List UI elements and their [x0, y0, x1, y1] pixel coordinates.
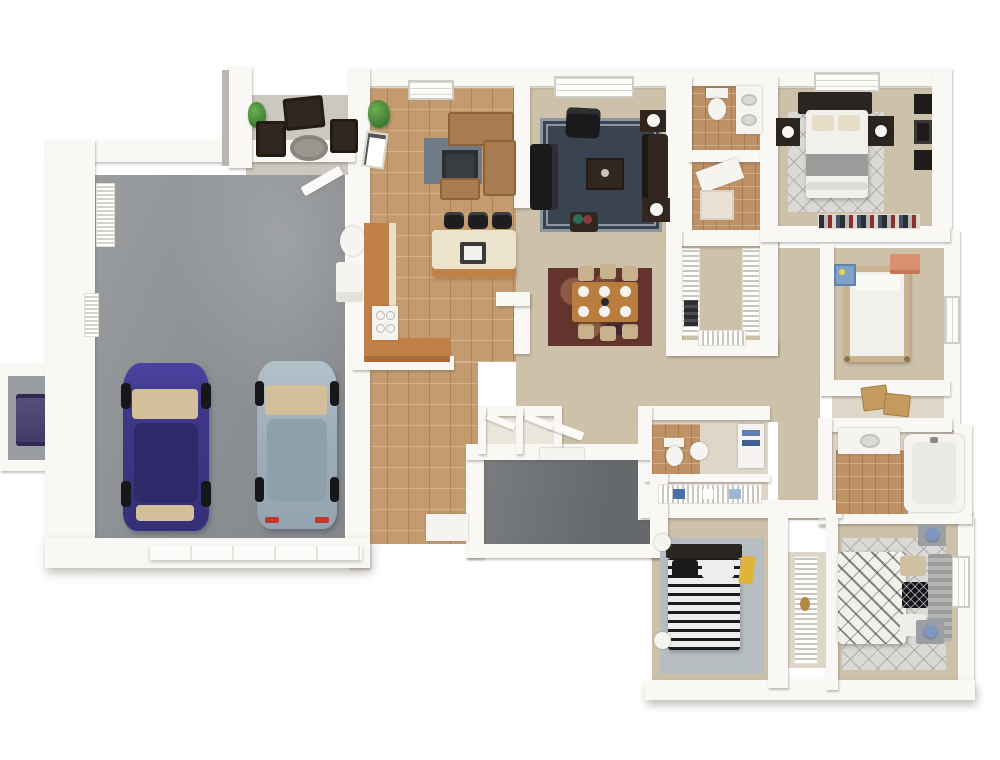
toy-shelf	[834, 264, 856, 286]
wardrobe-shelving	[794, 556, 818, 664]
bathtub-faucet	[930, 437, 938, 443]
bathtub	[904, 434, 964, 512]
round-side-table	[654, 534, 671, 551]
island-sink	[460, 242, 486, 264]
closet-shelf-bottom	[698, 330, 746, 346]
wall-niche-v2	[516, 406, 523, 454]
wall-wardrobe-right	[826, 518, 838, 690]
patio-chair-right	[330, 119, 358, 153]
centerpiece	[601, 298, 609, 306]
dining-chair	[578, 266, 594, 281]
water-heater	[340, 226, 365, 256]
round-side-table	[654, 632, 671, 649]
purple-sedan-windshield	[132, 389, 198, 419]
bedroom-3-headboard	[666, 544, 742, 558]
closet-shelf-right	[742, 248, 760, 336]
gray-blanket	[806, 154, 868, 176]
purple-sedan-wheel	[201, 481, 211, 507]
flowers	[573, 214, 583, 224]
patio-privacy-wall-side	[222, 70, 229, 166]
blue-lamp	[924, 625, 937, 638]
kitchen-counter-bottom	[364, 338, 450, 362]
silver-sedan-wheel	[255, 477, 264, 502]
nightstand-gray	[916, 620, 944, 644]
black-diamond-pillow	[902, 582, 928, 608]
place-setting	[578, 286, 589, 297]
pillow	[672, 560, 698, 578]
wall-family-living	[514, 86, 530, 208]
master-toilet-bowl	[708, 98, 726, 120]
master-toilet-tank	[706, 88, 728, 98]
silver-sedan-taillight	[265, 517, 279, 523]
wall-art-frame	[914, 120, 932, 144]
salmon-dresser	[890, 254, 920, 274]
silver-sedan-wheel	[255, 381, 264, 406]
sectional-sofa-side	[483, 140, 516, 196]
living-room-window	[554, 76, 634, 98]
end-table-bottom	[642, 198, 670, 222]
shower-base	[700, 190, 734, 220]
kitchen-island	[432, 230, 516, 278]
loveseat	[642, 134, 668, 200]
place-setting	[578, 306, 589, 317]
wall-bottom-right	[645, 680, 975, 700]
dining-chair	[578, 324, 594, 339]
vanity-sink	[860, 434, 880, 448]
blue-lamp	[926, 528, 939, 541]
front-door	[540, 448, 584, 460]
wall-bedroom2-left	[820, 244, 834, 394]
wall-art-frame	[914, 94, 932, 114]
silver-sedan-taillight	[315, 517, 329, 523]
dining-chair	[622, 324, 638, 339]
garage-door	[150, 546, 362, 560]
dining-chair	[600, 264, 616, 279]
nightstand-gray	[918, 524, 946, 546]
place-setting	[599, 286, 610, 297]
table-lamp	[647, 114, 660, 127]
master-closet-clothes	[818, 214, 920, 229]
master-bedroom-window	[814, 72, 880, 92]
armchair	[565, 107, 601, 139]
sectional-chaise	[440, 178, 480, 200]
garage-vent-upper	[96, 183, 115, 247]
wall-garage-left	[45, 140, 95, 565]
wall-bedroom3-right	[768, 518, 788, 688]
silver-sedan	[257, 361, 337, 529]
coffee-table	[586, 158, 624, 190]
range	[372, 306, 398, 340]
purple-sedan	[123, 363, 209, 531]
blanket-fold	[806, 182, 868, 190]
washer	[336, 262, 363, 302]
wall-right-1	[932, 68, 952, 236]
bedside-lamp	[782, 126, 794, 138]
floor-plan-3d	[0, 0, 1000, 760]
dining-table	[572, 282, 638, 322]
bed-post	[844, 356, 850, 362]
linens	[729, 489, 741, 499]
purple-sedan-wheel	[121, 481, 131, 507]
bedroom-2-window	[944, 296, 960, 344]
place-setting	[620, 286, 631, 297]
linen-shelf	[658, 484, 762, 504]
wall-porch-bottom	[466, 544, 668, 558]
burner	[376, 311, 385, 320]
bar-stool	[468, 212, 488, 229]
bathtub-basin	[912, 442, 956, 504]
wall-art-frame	[914, 150, 932, 170]
purple-sedan-roof	[134, 423, 198, 503]
flowers	[583, 215, 592, 224]
place-setting	[620, 306, 631, 317]
console-table	[426, 514, 468, 541]
bedroom-4-door	[950, 556, 970, 608]
pillow	[838, 115, 860, 131]
pillow	[812, 115, 834, 131]
wall-niche-v1	[478, 406, 486, 454]
master-vanity	[736, 86, 762, 134]
pillow	[854, 275, 900, 291]
bedside-lamp	[875, 125, 887, 137]
wall-kitchen-stub-h	[496, 292, 530, 306]
wall-hallbath-top	[638, 406, 770, 420]
pedestal-sink	[690, 442, 708, 460]
patio-bench	[282, 95, 325, 131]
dining-chair	[600, 326, 616, 341]
hall-toilet-bowl	[666, 446, 683, 466]
wall-closet-right	[760, 230, 778, 354]
bar-stool	[444, 212, 464, 229]
end-table-top	[640, 110, 666, 132]
blue-towel	[742, 440, 760, 446]
purple-sedan-wheel	[121, 383, 131, 409]
silver-sedan-wheel	[330, 381, 339, 406]
patio-round-rug	[290, 135, 328, 161]
nightstand	[868, 116, 894, 146]
pillow	[900, 556, 926, 576]
bed-post	[904, 356, 910, 362]
duvet	[838, 552, 906, 644]
vanity-sink	[741, 114, 757, 126]
hanging-clothes-dark	[684, 300, 698, 326]
linens	[703, 489, 713, 499]
dining-chair	[622, 266, 638, 281]
table-lamp	[650, 203, 663, 216]
hall-right-floor	[778, 248, 820, 520]
silver-sedan-windshield	[265, 385, 327, 415]
bathroom-2-tile	[836, 450, 908, 514]
burner	[376, 324, 385, 333]
patio-chair-left	[256, 121, 286, 157]
family-room-window	[408, 80, 454, 100]
master-bed	[806, 110, 868, 198]
entry-porch-floor	[482, 460, 652, 546]
table-decor	[601, 169, 609, 177]
toy	[839, 269, 845, 275]
stored-items	[800, 597, 810, 611]
purple-sedan-wheel	[201, 383, 211, 409]
silver-sedan-roof	[267, 419, 327, 501]
silver-sedan-wheel	[330, 477, 339, 502]
pillow	[702, 560, 734, 578]
purple-sedan-rear-window	[136, 505, 194, 521]
vanity-sink	[741, 94, 757, 106]
nightstand	[776, 118, 800, 146]
bedroom-3-striped-bed	[668, 558, 740, 650]
burner	[386, 311, 395, 320]
towel-cabinet	[738, 424, 764, 468]
wall-porch-left	[466, 444, 484, 558]
blue-towel	[742, 430, 760, 436]
wall-closet-left	[666, 230, 682, 354]
moving-box	[883, 393, 911, 418]
bathroom-2-vanity	[838, 428, 900, 454]
linens	[673, 489, 685, 499]
family-room-plant	[368, 100, 390, 128]
bar-stool	[492, 212, 512, 229]
place-setting	[599, 306, 610, 317]
flower-stand	[570, 212, 598, 232]
garage-vent-lower	[84, 293, 99, 337]
wall-master-left	[760, 76, 778, 236]
burner	[386, 324, 395, 333]
black-sofa	[530, 144, 558, 210]
